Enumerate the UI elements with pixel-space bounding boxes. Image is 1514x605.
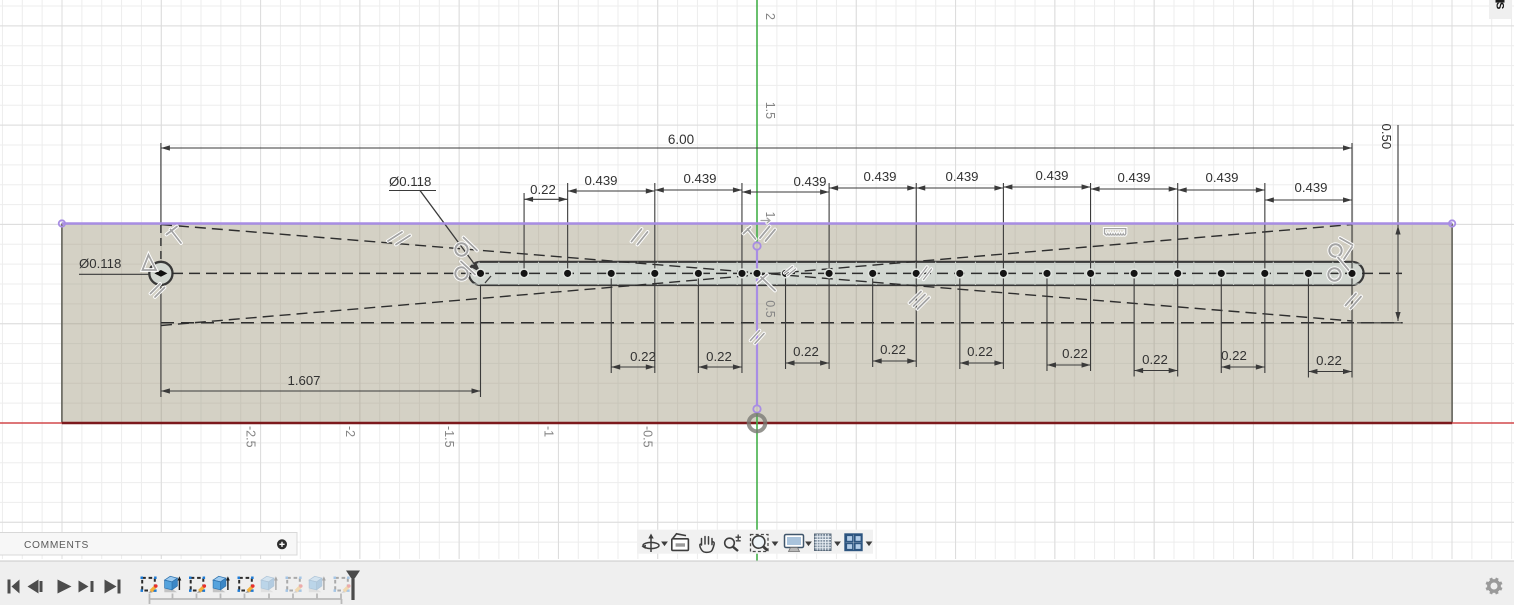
svg-text:0.439: 0.439 — [1205, 170, 1238, 185]
svg-text:0.22: 0.22 — [530, 182, 556, 197]
svg-text:0.439: 0.439 — [584, 173, 617, 188]
svg-text:0.439: 0.439 — [945, 169, 978, 184]
svg-text:1: 1 — [763, 211, 777, 218]
svg-text:1.5: 1.5 — [763, 102, 777, 119]
svg-text:S: S — [1494, 2, 1506, 9]
svg-text:0.22: 0.22 — [1142, 352, 1168, 367]
svg-text:0.439: 0.439 — [793, 174, 826, 189]
svg-text:Ø0.118: Ø0.118 — [79, 256, 121, 271]
svg-text:0.50: 0.50 — [1379, 124, 1394, 150]
svg-text:Ø0.118: Ø0.118 — [389, 174, 431, 189]
svg-text:0.22: 0.22 — [880, 342, 906, 357]
svg-text:0.22: 0.22 — [630, 349, 656, 364]
svg-text:0.22: 0.22 — [1221, 348, 1247, 363]
svg-text:0.22: 0.22 — [793, 344, 819, 359]
svg-text:0.22: 0.22 — [967, 344, 993, 359]
svg-text:0.439: 0.439 — [863, 169, 896, 184]
svg-text:0.439: 0.439 — [1117, 170, 1150, 185]
svg-text:-2: -2 — [343, 426, 357, 437]
svg-text:-1: -1 — [541, 426, 555, 437]
svg-text:-1.5: -1.5 — [442, 426, 456, 448]
svg-text:0.439: 0.439 — [1294, 180, 1327, 195]
svg-text:2: 2 — [763, 13, 777, 20]
svg-text:0.439: 0.439 — [1035, 168, 1068, 183]
svg-text:1.607: 1.607 — [287, 373, 320, 388]
svg-text:COMMENTS: COMMENTS — [24, 540, 89, 551]
svg-text:0.22: 0.22 — [706, 349, 732, 364]
svg-text:-2.5: -2.5 — [244, 426, 258, 448]
svg-text:0.439: 0.439 — [683, 171, 716, 186]
svg-text:0.22: 0.22 — [1062, 346, 1088, 361]
svg-text:-0.5: -0.5 — [641, 426, 655, 448]
svg-text:0.5: 0.5 — [763, 300, 777, 317]
svg-text:0.22: 0.22 — [1316, 353, 1342, 368]
svg-text:6.00: 6.00 — [668, 132, 694, 147]
